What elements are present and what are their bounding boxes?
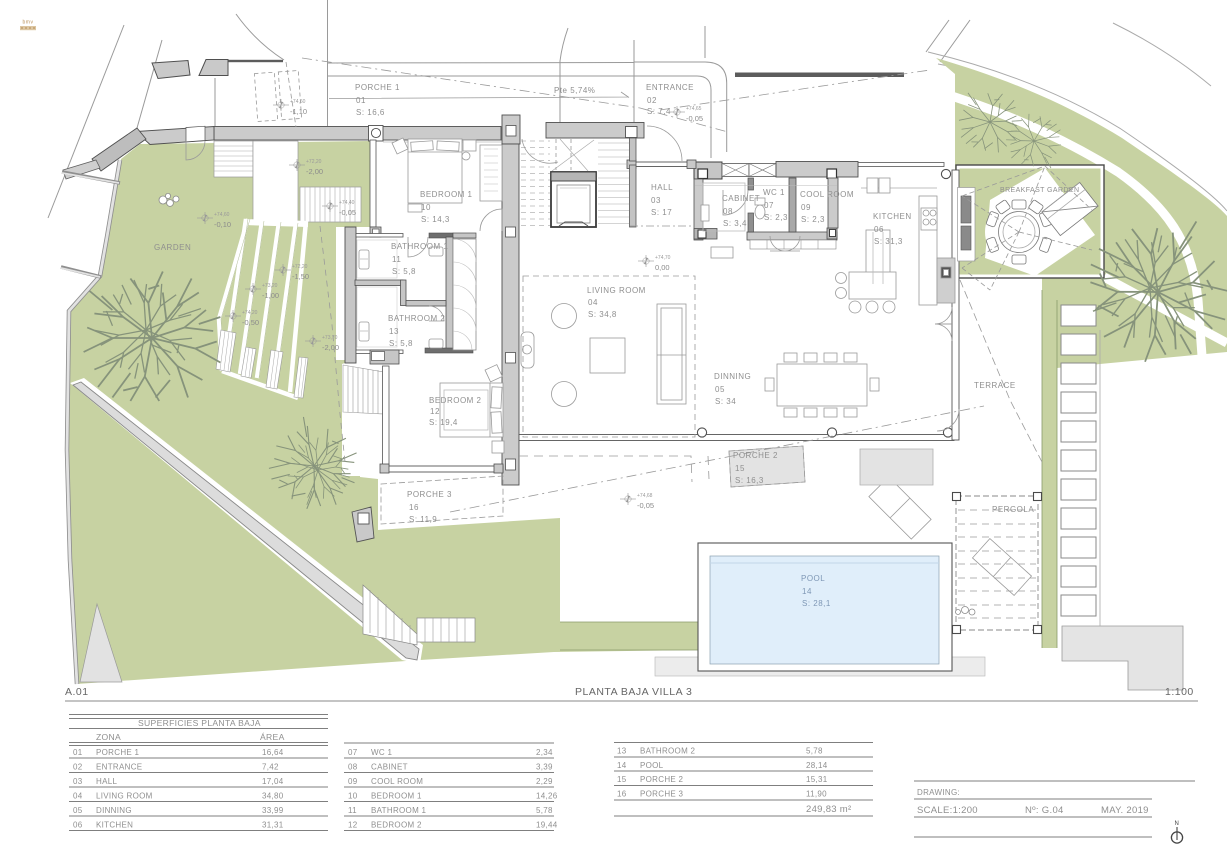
svg-text:28,14: 28,14 <box>806 761 828 770</box>
svg-text:PORCHE 3: PORCHE 3 <box>407 490 452 499</box>
svg-text:PORCHE 3: PORCHE 3 <box>640 790 684 799</box>
svg-text:3,39: 3,39 <box>536 763 553 772</box>
svg-text:03: 03 <box>651 196 661 205</box>
svg-text:BATHROOM 2: BATHROOM 2 <box>640 747 696 756</box>
svg-text:ENTRANCE: ENTRANCE <box>646 83 694 92</box>
svg-text:N: N <box>1175 821 1179 827</box>
svg-text:-2,00: -2,00 <box>306 167 323 176</box>
svg-text:16: 16 <box>617 790 627 799</box>
svg-text:S: 34: S: 34 <box>715 397 736 406</box>
svg-text:POOL: POOL <box>801 574 825 583</box>
svg-text:+72,20: +72,20 <box>306 159 322 165</box>
svg-text:17,04: 17,04 <box>262 777 284 786</box>
svg-text:TERRACE: TERRACE <box>974 381 1016 390</box>
svg-text:COOL ROOM: COOL ROOM <box>371 777 423 786</box>
svg-text:WC 1: WC 1 <box>371 748 392 757</box>
svg-text:+74,60: +74,60 <box>290 99 306 105</box>
svg-text:BATHROOM 1: BATHROOM 1 <box>371 806 427 815</box>
svg-text:-1,10: -1,10 <box>290 107 307 116</box>
svg-text:+74,68: +74,68 <box>637 493 653 499</box>
svg-text:-2,00: -2,00 <box>322 343 339 352</box>
svg-text:+74,70: +74,70 <box>655 255 671 261</box>
svg-text:+74,20: +74,20 <box>242 310 258 316</box>
svg-text:03: 03 <box>73 777 83 786</box>
svg-text:A.01: A.01 <box>65 686 89 698</box>
svg-text:Nº: G.04: Nº: G.04 <box>1025 805 1064 816</box>
svg-text:02: 02 <box>73 763 83 772</box>
svg-text:DRAWING:: DRAWING: <box>917 788 960 797</box>
svg-text:S: 5,8: S: 5,8 <box>389 339 413 348</box>
svg-text:ENTRANCE: ENTRANCE <box>96 763 142 772</box>
svg-text:BEDROOM 2: BEDROOM 2 <box>371 821 422 830</box>
svg-text:16: 16 <box>409 503 419 512</box>
svg-text:S: 31,3: S: 31,3 <box>874 237 903 246</box>
svg-text:+72,20: +72,20 <box>292 264 308 270</box>
svg-text:33,99: 33,99 <box>262 806 284 815</box>
svg-text:ÁREA: ÁREA <box>260 732 285 742</box>
svg-text:PLANTA BAJA VILLA 3: PLANTA BAJA VILLA 3 <box>575 686 692 698</box>
svg-text:-1,00: -1,00 <box>262 291 279 300</box>
svg-text:1:100: 1:100 <box>1165 686 1194 698</box>
svg-text:KITCHEN: KITCHEN <box>96 821 133 830</box>
svg-text:PORCHE 2: PORCHE 2 <box>733 451 778 460</box>
svg-text:08: 08 <box>348 763 358 772</box>
svg-text:DINNING: DINNING <box>96 806 132 815</box>
svg-text:15,31: 15,31 <box>806 775 828 784</box>
svg-text:11,90: 11,90 <box>806 790 827 799</box>
svg-text:16,64: 16,64 <box>262 748 284 757</box>
svg-text:01: 01 <box>356 96 366 105</box>
svg-text:+74,60: +74,60 <box>214 212 230 218</box>
svg-text:01: 01 <box>73 748 83 757</box>
svg-text:BATHROOM 2: BATHROOM 2 <box>388 314 445 323</box>
svg-text:5,78: 5,78 <box>536 806 553 815</box>
svg-text:31,31: 31,31 <box>262 821 284 830</box>
svg-text:-0,10: -0,10 <box>214 220 231 229</box>
svg-text:-1,50: -1,50 <box>292 272 309 281</box>
svg-text:-0,50: -0,50 <box>242 318 259 327</box>
svg-text:09: 09 <box>348 777 358 786</box>
svg-text:SCALE:1:200: SCALE:1:200 <box>917 805 978 816</box>
svg-text:07: 07 <box>764 201 774 210</box>
svg-text:BATHROOM 1: BATHROOM 1 <box>391 242 448 251</box>
svg-text:04: 04 <box>73 792 83 801</box>
svg-text:S: 17: S: 17 <box>651 208 672 217</box>
svg-text:-0,05: -0,05 <box>339 208 356 217</box>
svg-text:2,29: 2,29 <box>536 777 553 786</box>
svg-text:S: 2,3: S: 2,3 <box>801 215 825 224</box>
svg-text:14,26: 14,26 <box>536 792 558 801</box>
svg-text:+74,40: +74,40 <box>339 200 355 206</box>
svg-text:34,80: 34,80 <box>262 792 284 801</box>
svg-text:POOL: POOL <box>640 761 664 770</box>
svg-text:LIVING ROOM: LIVING ROOM <box>96 792 153 801</box>
svg-text:19,44: 19,44 <box>536 821 558 830</box>
svg-text:HALL: HALL <box>651 183 673 192</box>
svg-text:PORCHE 2: PORCHE 2 <box>640 775 684 784</box>
svg-text:bmv: bmv <box>23 20 34 26</box>
svg-text:05: 05 <box>73 806 83 815</box>
svg-text:15: 15 <box>617 775 627 784</box>
svg-text:08: 08 <box>723 207 733 216</box>
svg-text:BEDROOM 1: BEDROOM 1 <box>371 792 422 801</box>
svg-text:LIVING ROOM: LIVING ROOM <box>587 286 646 295</box>
svg-text:S: 28,1: S: 28,1 <box>802 599 831 608</box>
svg-text:0,00: 0,00 <box>655 263 670 272</box>
svg-text:13: 13 <box>617 747 627 756</box>
svg-text:02: 02 <box>647 96 657 105</box>
svg-text:04: 04 <box>588 298 598 307</box>
svg-text:+73,70: +73,70 <box>322 335 338 341</box>
svg-text:HALL: HALL <box>96 777 117 786</box>
svg-text:WC 1: WC 1 <box>763 188 785 197</box>
svg-text:BEDROOM 1: BEDROOM 1 <box>420 190 473 199</box>
svg-text:S: 7,4: S: 7,4 <box>647 107 671 116</box>
svg-text:5,78: 5,78 <box>806 747 823 756</box>
svg-text:COOL ROOM: COOL ROOM <box>800 190 854 199</box>
svg-text:S: 16,6: S: 16,6 <box>356 108 385 117</box>
svg-text:7,42: 7,42 <box>262 763 279 772</box>
svg-text:09: 09 <box>801 203 811 212</box>
svg-text:S: 14,3: S: 14,3 <box>421 215 450 224</box>
svg-text:PORCHE 1: PORCHE 1 <box>355 83 400 92</box>
svg-text:06: 06 <box>874 225 884 234</box>
svg-text:11: 11 <box>392 255 401 264</box>
svg-text:S: 11,9: S: 11,9 <box>409 515 437 524</box>
svg-text:10: 10 <box>348 792 358 801</box>
svg-text:KITCHEN: KITCHEN <box>873 212 912 221</box>
svg-text:S: 34,8: S: 34,8 <box>588 310 617 319</box>
svg-text:BEDROOM 2: BEDROOM 2 <box>429 396 482 405</box>
svg-text:07: 07 <box>348 748 358 757</box>
svg-text:06: 06 <box>73 821 83 830</box>
svg-text:MAY. 2019: MAY. 2019 <box>1101 805 1149 816</box>
svg-text:10: 10 <box>421 203 431 212</box>
svg-text:ZONA: ZONA <box>96 732 121 742</box>
svg-text:15: 15 <box>735 464 745 473</box>
svg-text:S: 2,3: S: 2,3 <box>764 213 788 222</box>
svg-text:CABINET: CABINET <box>722 194 760 203</box>
svg-text:12: 12 <box>348 821 358 830</box>
svg-text:05: 05 <box>715 385 725 394</box>
svg-text:249,83 m²: 249,83 m² <box>806 804 851 815</box>
svg-text:GARDEN: GARDEN <box>154 243 191 252</box>
svg-text:BREAKFAST GARDEN: BREAKFAST GARDEN <box>1000 187 1079 194</box>
svg-text:-0,05: -0,05 <box>686 114 703 123</box>
svg-text:14: 14 <box>617 761 627 770</box>
svg-text:+73,20: +73,20 <box>262 283 278 289</box>
svg-text:S: 19,4: S: 19,4 <box>429 418 458 427</box>
svg-text:S: 5,8: S: 5,8 <box>392 267 416 276</box>
svg-text:11: 11 <box>348 806 357 815</box>
svg-text:Pte 5,74%: Pte 5,74% <box>554 86 595 95</box>
svg-text:-0,05: -0,05 <box>637 501 654 510</box>
svg-text:S: 16,3: S: 16,3 <box>735 476 764 485</box>
svg-text:PERGOLA: PERGOLA <box>992 505 1034 514</box>
svg-text:12: 12 <box>430 407 440 416</box>
svg-text:SUPERFICIES PLANTA BAJA: SUPERFICIES PLANTA BAJA <box>138 718 261 728</box>
svg-text:13: 13 <box>389 327 399 336</box>
svg-text:CABINET: CABINET <box>371 763 408 772</box>
svg-text:14: 14 <box>802 587 812 596</box>
svg-text:DINNING: DINNING <box>714 372 751 381</box>
svg-text:+74,65: +74,65 <box>686 106 702 112</box>
svg-text:S: 3,4: S: 3,4 <box>723 219 747 228</box>
svg-text:2,34: 2,34 <box>536 748 553 757</box>
svg-text:PORCHE 1: PORCHE 1 <box>96 748 140 757</box>
